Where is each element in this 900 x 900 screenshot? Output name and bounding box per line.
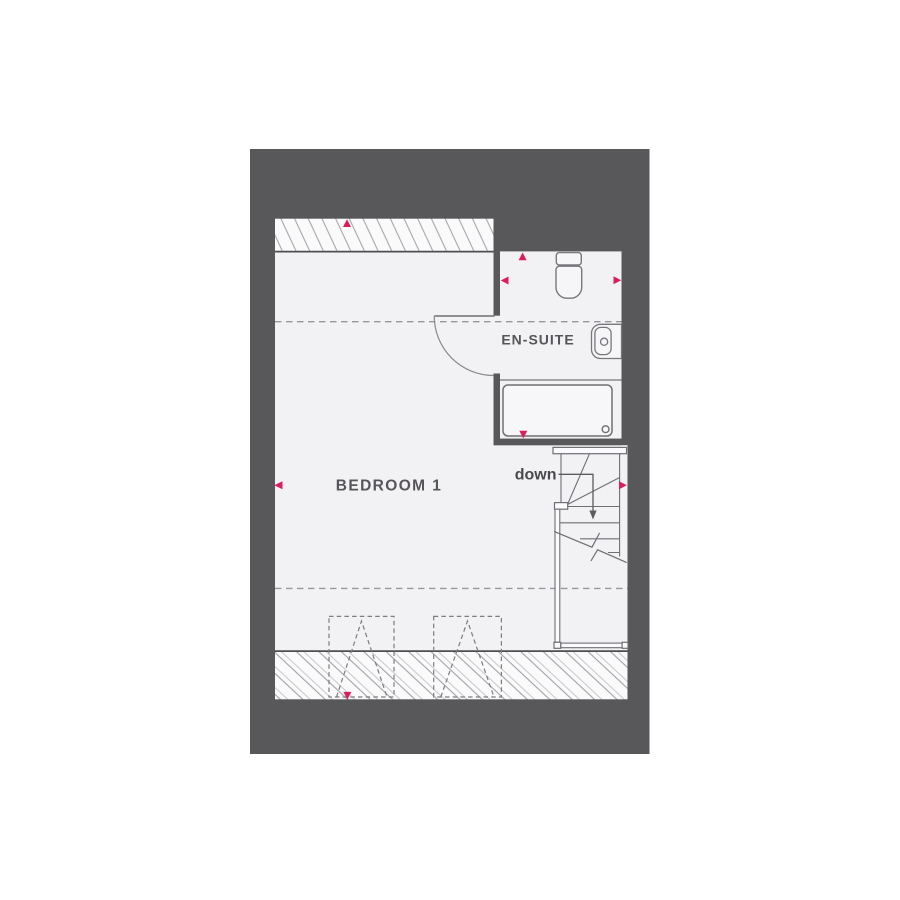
- svg-text:BEDROOM 1: BEDROOM 1: [336, 478, 442, 495]
- svg-text:EN-SUITE: EN-SUITE: [501, 332, 574, 348]
- svg-text:down: down: [515, 466, 557, 483]
